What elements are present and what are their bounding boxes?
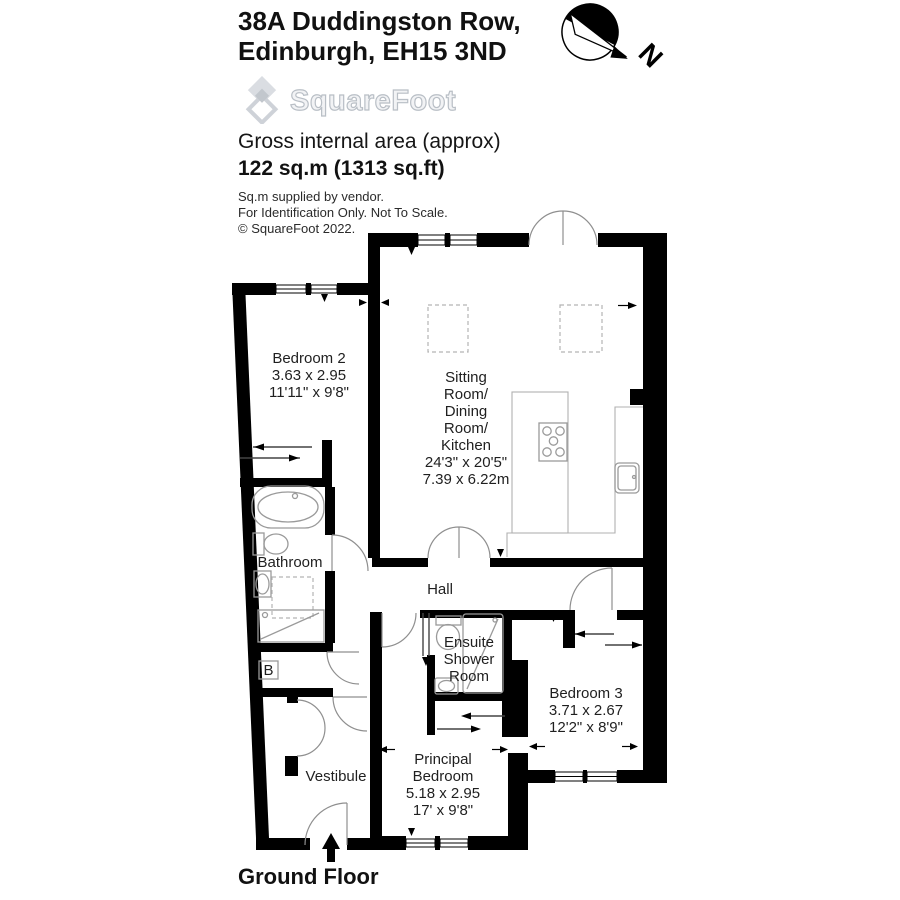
label-sitting-room: Sitting Room/ Dining Room/ Kitchen 24'3"… [423,369,510,488]
principal-dims-m: 5.18 x 2.95 [406,785,480,802]
principal-dims-ft: 17' x 9'8" [413,802,473,819]
window-principal-1 [406,839,435,847]
bedroom2-dims-m: 3.63 x 2.95 [272,367,346,384]
shower-tray-bathroom [258,610,324,642]
cupboard-double-doors-vestibule [297,700,325,756]
compass-icon: N [552,0,669,78]
ensuite-name-2: Shower [444,651,495,668]
label-ensuite: Ensuite Shower Room [444,634,495,685]
door-boiler-cupboard [327,652,359,684]
window-sitting-2 [450,235,477,245]
kitchen-island [512,392,568,533]
bedroom2-name: Bedroom 2 [272,350,345,367]
window-bedroom2-2 [311,285,337,293]
pocket-door-ensuite [422,613,430,666]
bathroom-name: Bathroom [257,554,322,571]
window-bedroom2-1 [276,285,306,293]
principal-name-1: Principal [414,751,472,768]
label-principal-bedroom: Principal Bedroom 5.18 x 2.95 17' x 9'8" [406,751,480,819]
shower-area-dashed [272,577,313,618]
sitting-name-4: Room/ [444,420,489,437]
bedroom2-dims-ft: 11'11" x 9'8" [269,384,349,401]
kitchen-sink [615,463,639,493]
ensuite-name-1: Ensuite [444,634,494,651]
wardrobe-principal [437,713,505,733]
french-doors-sitting [529,211,597,245]
label-bathroom: Bathroom [257,554,322,571]
compass-north-label: N [633,37,669,73]
label-bedroom3: Bedroom 3 3.71 x 2.67 12'2" x 8'9" [549,685,623,736]
principal-name-2: Bedroom [413,768,474,785]
sitting-dims-ft: 24'3" x 20'5" [425,454,507,471]
bedroom3-name: Bedroom 3 [549,685,622,702]
hall-name: Hall [427,581,453,598]
entrance-arrow [322,833,340,862]
window-sitting-1 [418,235,445,245]
sitting-name-5: Kitchen [441,437,491,454]
rooflight-dashed-1 [428,305,468,352]
sitting-name-3: Dining [445,403,488,420]
door-principal-bedroom [382,613,416,647]
floor-plan: N [0,0,900,900]
toilet-bathroom [253,533,288,555]
label-vestibule: Vestibule [306,768,367,785]
vestibule-name: Vestibule [306,768,367,785]
window-bedroom3-2 [587,772,617,781]
window-bedroom3-1 [555,772,583,781]
double-doors-hall-sitting [428,527,490,558]
floor-title: Ground Floor [238,864,379,889]
rooflight-dashed-2 [560,305,602,352]
label-hall: Hall [427,581,453,598]
bedroom3-dims-m: 3.71 x 2.67 [549,702,623,719]
floorplan-page: { "header": { "address_line1": "38A Dudd… [0,0,900,900]
door-bedroom3 [570,568,612,610]
door-vestibule [333,697,367,731]
sitting-name-1: Sitting [445,369,487,386]
sitting-name-2: Room/ [444,386,489,403]
boiler-label: B [263,662,273,679]
kitchen-counter [507,407,643,557]
ensuite-name-3: Room [449,668,489,685]
bedroom3-dims-ft: 12'2" x 8'9" [549,719,623,736]
wardrobe-bedroom3 [575,631,642,649]
door-entrance [305,803,347,845]
label-bedroom2: Bedroom 2 3.63 x 2.95 11'11" x 9'8" [269,350,349,401]
doors [297,211,612,845]
label-boiler: B [263,662,273,679]
door-bathroom [332,535,368,571]
window-principal-2 [440,839,468,847]
sitting-dims-m: 7.39 x 6.22m [423,471,510,488]
bathtub [252,486,324,528]
